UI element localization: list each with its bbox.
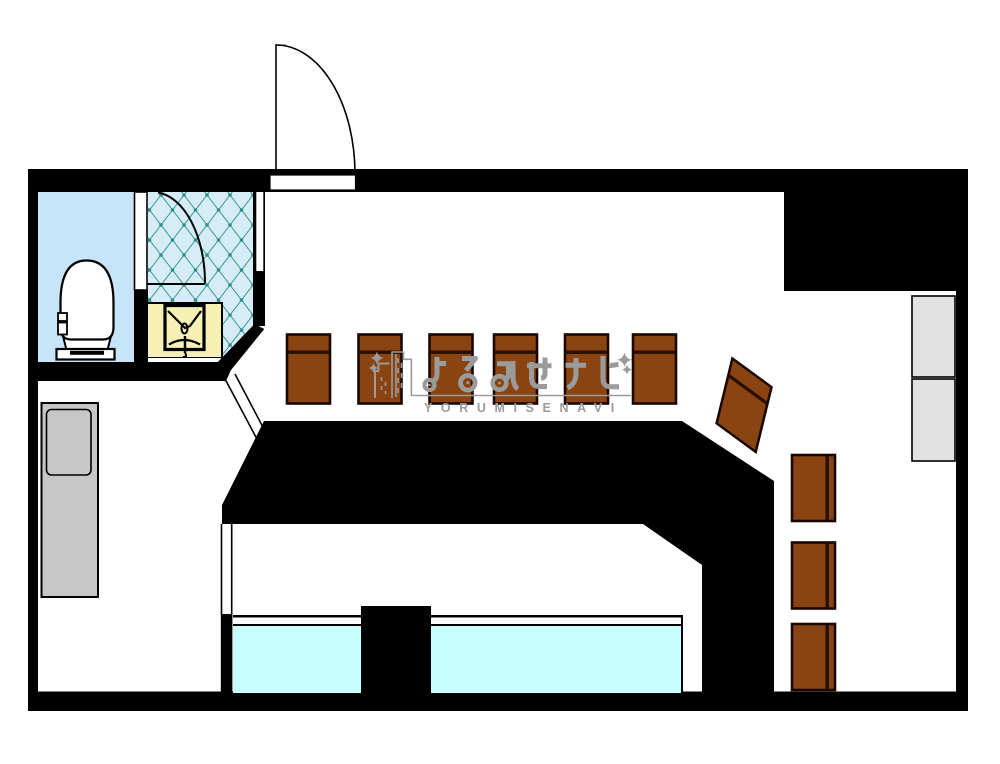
svg-text:YORUMISENAVI: YORUMISENAVI bbox=[424, 401, 623, 415]
